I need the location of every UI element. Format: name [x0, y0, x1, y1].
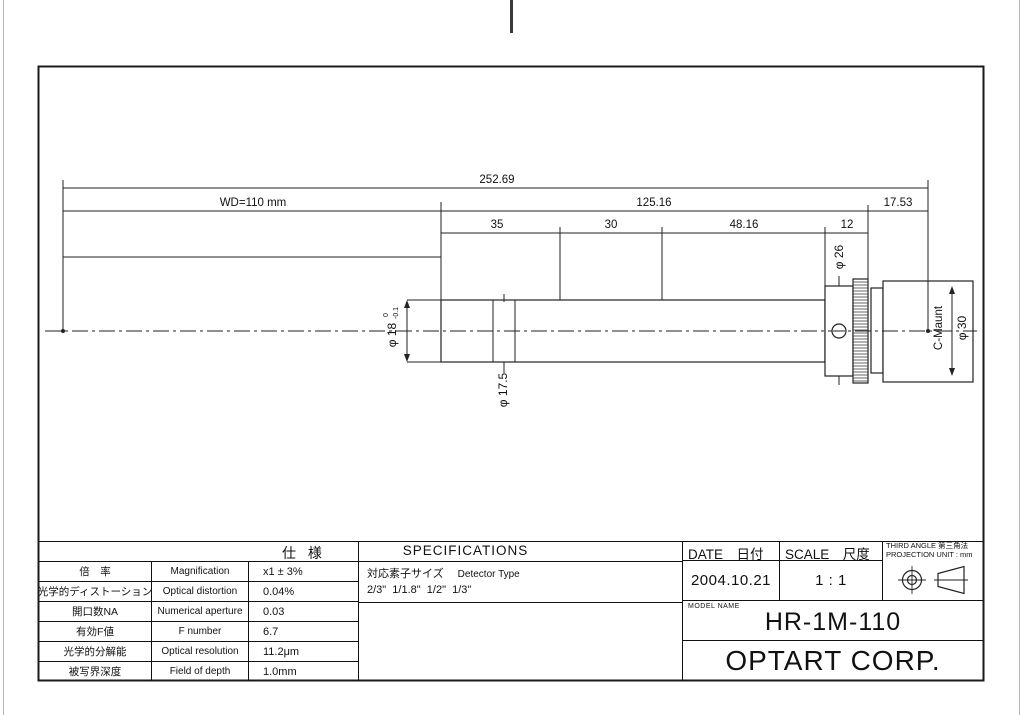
detector-label-jp: 対応素子サイズ — [367, 568, 444, 580]
scale-label: SCALE 尺度 — [780, 542, 882, 561]
specifications-section: SPECIFICATIONS 対応素子サイズDetector Type 2/3"… — [359, 542, 683, 681]
dim-12: 12 — [841, 219, 854, 231]
dim-dia18: φ 18 — [385, 322, 399, 347]
image-plane-point — [926, 329, 930, 333]
spec-row-jp: 光学的分解能 — [39, 641, 152, 661]
spec-table: 仕 様 倍 率 Magnification x1 ± 3% 光学的ディストーショ… — [39, 542, 359, 681]
spec-row-jp: 被写界深度 — [39, 661, 152, 681]
spec-row-en: Magnification — [152, 561, 249, 581]
spec-table-grid: 倍 率 Magnification x1 ± 3% 光学的ディストーション Op… — [39, 561, 358, 681]
spec-row-en: Optical resolution — [152, 641, 249, 661]
dim-dia26: φ 26 — [832, 244, 846, 269]
spec-row-value: 0.03 — [249, 601, 359, 621]
spec-row-jp: 倍 率 — [39, 561, 152, 581]
date-value: 2004.10.21 — [683, 561, 779, 600]
spec-row-jp: 光学的ディストーション — [39, 581, 152, 601]
label-c-mount: C-Maunt — [933, 305, 945, 350]
spec-row-value: x1 ± 3% — [249, 561, 359, 581]
detector-label-en: Detector Type — [458, 569, 520, 580]
company-name: OPTART CORP. — [683, 640, 983, 681]
detector-sizes: 2/3" 1/1.8" 1/2" 1/3" — [367, 584, 682, 596]
dim-48-16: 48.16 — [730, 219, 759, 231]
spec-row-jp: 開口数NA — [39, 601, 152, 621]
title-block: 仕 様 倍 率 Magnification x1 ± 3% 光学的ディストーショ… — [39, 541, 983, 681]
spec-row-en: Optical distortion — [152, 581, 249, 601]
dim-dia18-tol-lower: -0.1 — [393, 307, 400, 319]
spec-row-value: 6.7 — [249, 621, 359, 641]
dim-working-distance: WD=110 mm — [220, 197, 287, 209]
title-block-right: DATE 日付 2004.10.21 SCALE 尺度 1 : 1 THIRD … — [683, 542, 983, 681]
specifications-notes-empty — [359, 602, 682, 681]
model-name-cell: MODEL NAME HR-1M-110 — [683, 600, 983, 640]
dim-30: 30 — [605, 219, 618, 231]
dim-dia30: φ 30 — [955, 315, 969, 340]
spec-row-en: Field of depth — [152, 661, 249, 681]
third-angle-projection-icon — [886, 561, 982, 599]
spec-row-jp: 有効F値 — [39, 621, 152, 641]
dim-125-16: 125.16 — [636, 197, 671, 209]
dim-dia17-5: φ 17.5 — [496, 372, 510, 407]
dim-dia18-tol-upper: 0 — [383, 313, 390, 317]
detector-type-cell: 対応素子サイズDetector Type 2/3" 1/1.8" 1/2" 1/… — [359, 561, 682, 602]
spec-row-value: 0.04% — [249, 581, 359, 601]
projection-cell: THIRD ANGLE 第三角法 PROJECTION UNIT : mm — [883, 542, 983, 600]
dim-35: 35 — [491, 219, 504, 231]
scale-value: 1 : 1 — [780, 561, 882, 600]
date-cell: DATE 日付 2004.10.21 — [683, 542, 780, 600]
spec-row-value: 11.2μm — [249, 641, 359, 661]
spec-row-value: 1.0mm — [249, 661, 359, 681]
page: 252.69 WD=110 mm 125.16 17.53 35 30 48.1… — [0, 0, 1024, 715]
scale-cell: SCALE 尺度 1 : 1 — [780, 542, 883, 600]
spec-row-en: Numerical aperture — [152, 601, 249, 621]
object-plane-point — [61, 329, 65, 333]
spec-row-en: F number — [152, 621, 249, 641]
date-label: DATE 日付 — [683, 542, 779, 561]
dim-17-53: 17.53 — [884, 197, 913, 209]
projection-label-line2: PROJECTION UNIT : mm — [883, 551, 983, 560]
dim-total-length: 252.69 — [479, 174, 514, 186]
model-name-label: MODEL NAME — [688, 603, 740, 610]
specifications-title: SPECIFICATIONS — [304, 542, 627, 561]
